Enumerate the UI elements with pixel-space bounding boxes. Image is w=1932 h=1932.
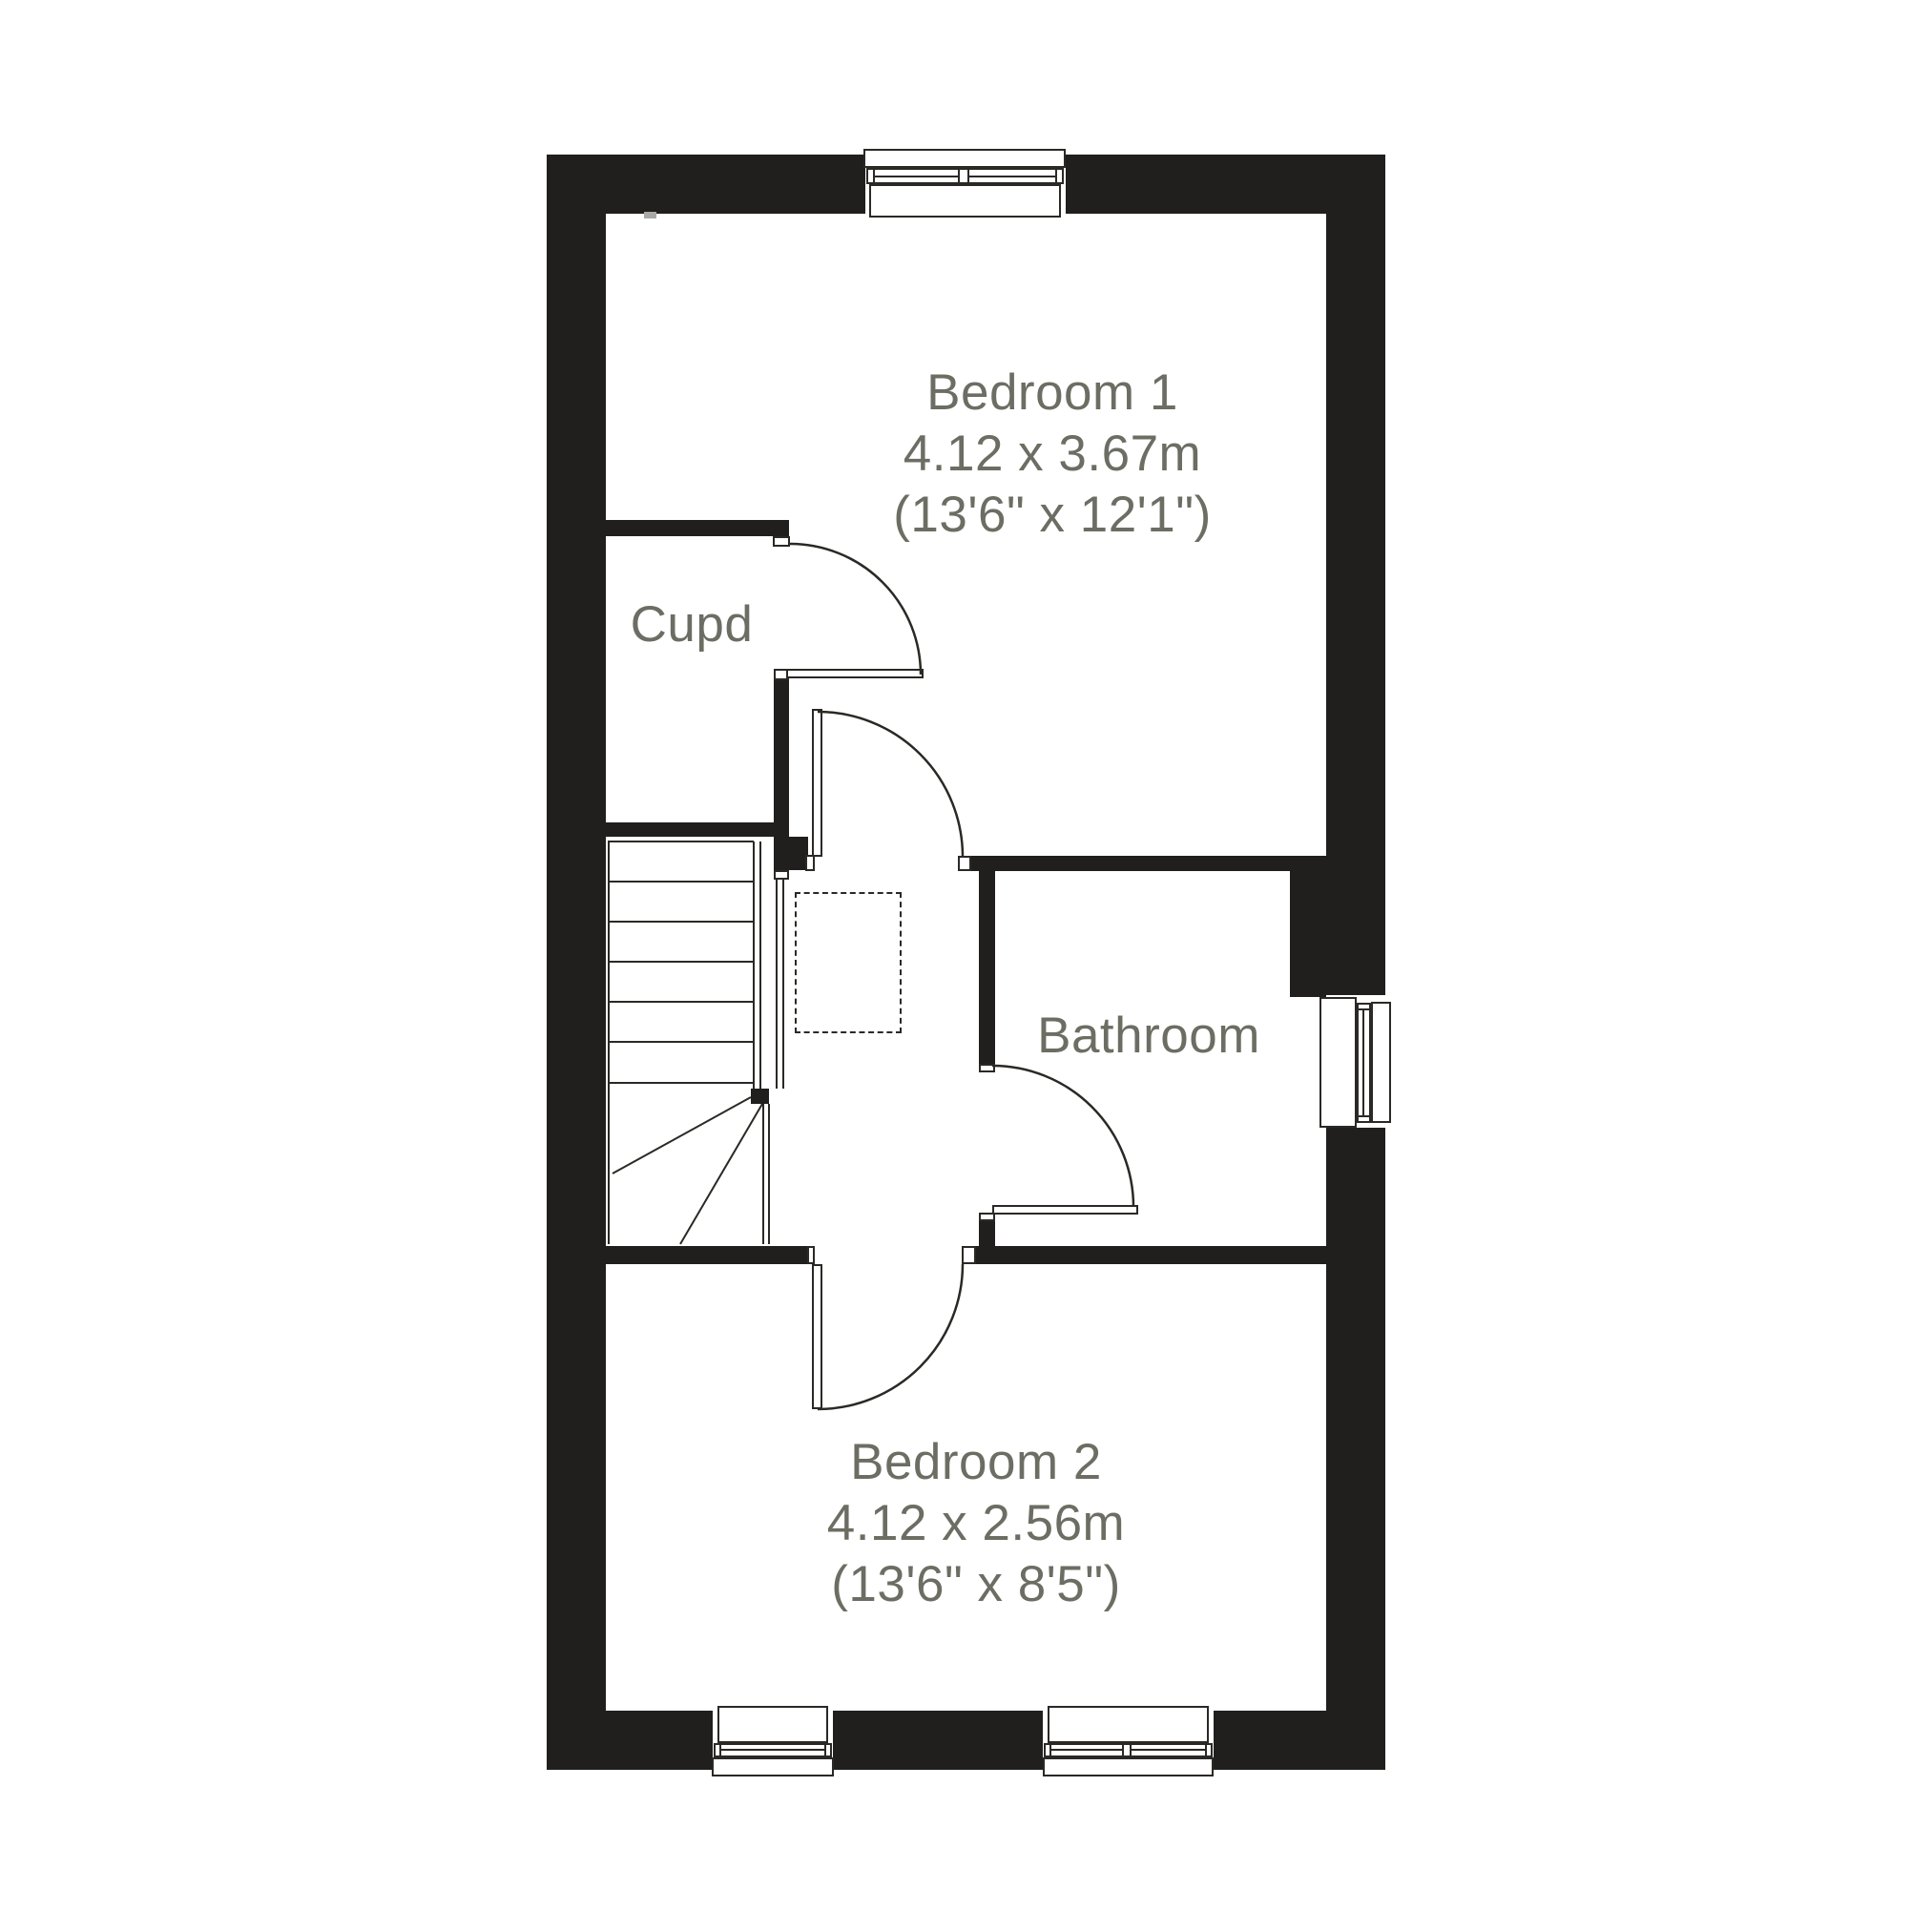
dashed-outline-box: [795, 892, 902, 1033]
stair-winder: [613, 1097, 751, 1174]
room-label-bedroom-1: Bedroom 1 4.12 x 3.67m (13'6" x 12'1"): [893, 363, 1211, 546]
room-size-metric: 4.12 x 3.67m: [893, 424, 1211, 485]
room-name: Bedroom 2: [827, 1432, 1125, 1493]
floorplan-linework: [0, 0, 1932, 1932]
room-size-imperial: (13'6" x 8'5"): [827, 1554, 1125, 1615]
room-size-metric: 4.12 x 2.56m: [827, 1493, 1125, 1554]
stair-newel-post: [751, 1089, 769, 1104]
stair-winder: [680, 1104, 762, 1244]
room-size-imperial: (13'6" x 12'1"): [893, 485, 1211, 546]
room-label-bedroom-2: Bedroom 2 4.12 x 2.56m (13'6" x 8'5"): [827, 1432, 1125, 1615]
room-name: Bedroom 1: [893, 363, 1211, 424]
bathroom-door-arc: [992, 1066, 1133, 1207]
wall-marker-tick: [644, 212, 656, 218]
room-name: Bathroom: [1037, 1006, 1260, 1067]
room-label-cupboard: Cupd: [631, 594, 754, 655]
room-name: Cupd: [631, 594, 754, 655]
floor-plan: Bedroom 1 4.12 x 3.67m (13'6" x 12'1") C…: [0, 0, 1932, 1932]
bedroom-1-door-arc: [818, 712, 963, 857]
cupboard-door-arc: [790, 544, 921, 675]
bedroom-2-door-arc: [818, 1264, 963, 1409]
staircase: [608, 841, 783, 1244]
room-label-bathroom: Bathroom: [1037, 1006, 1260, 1067]
